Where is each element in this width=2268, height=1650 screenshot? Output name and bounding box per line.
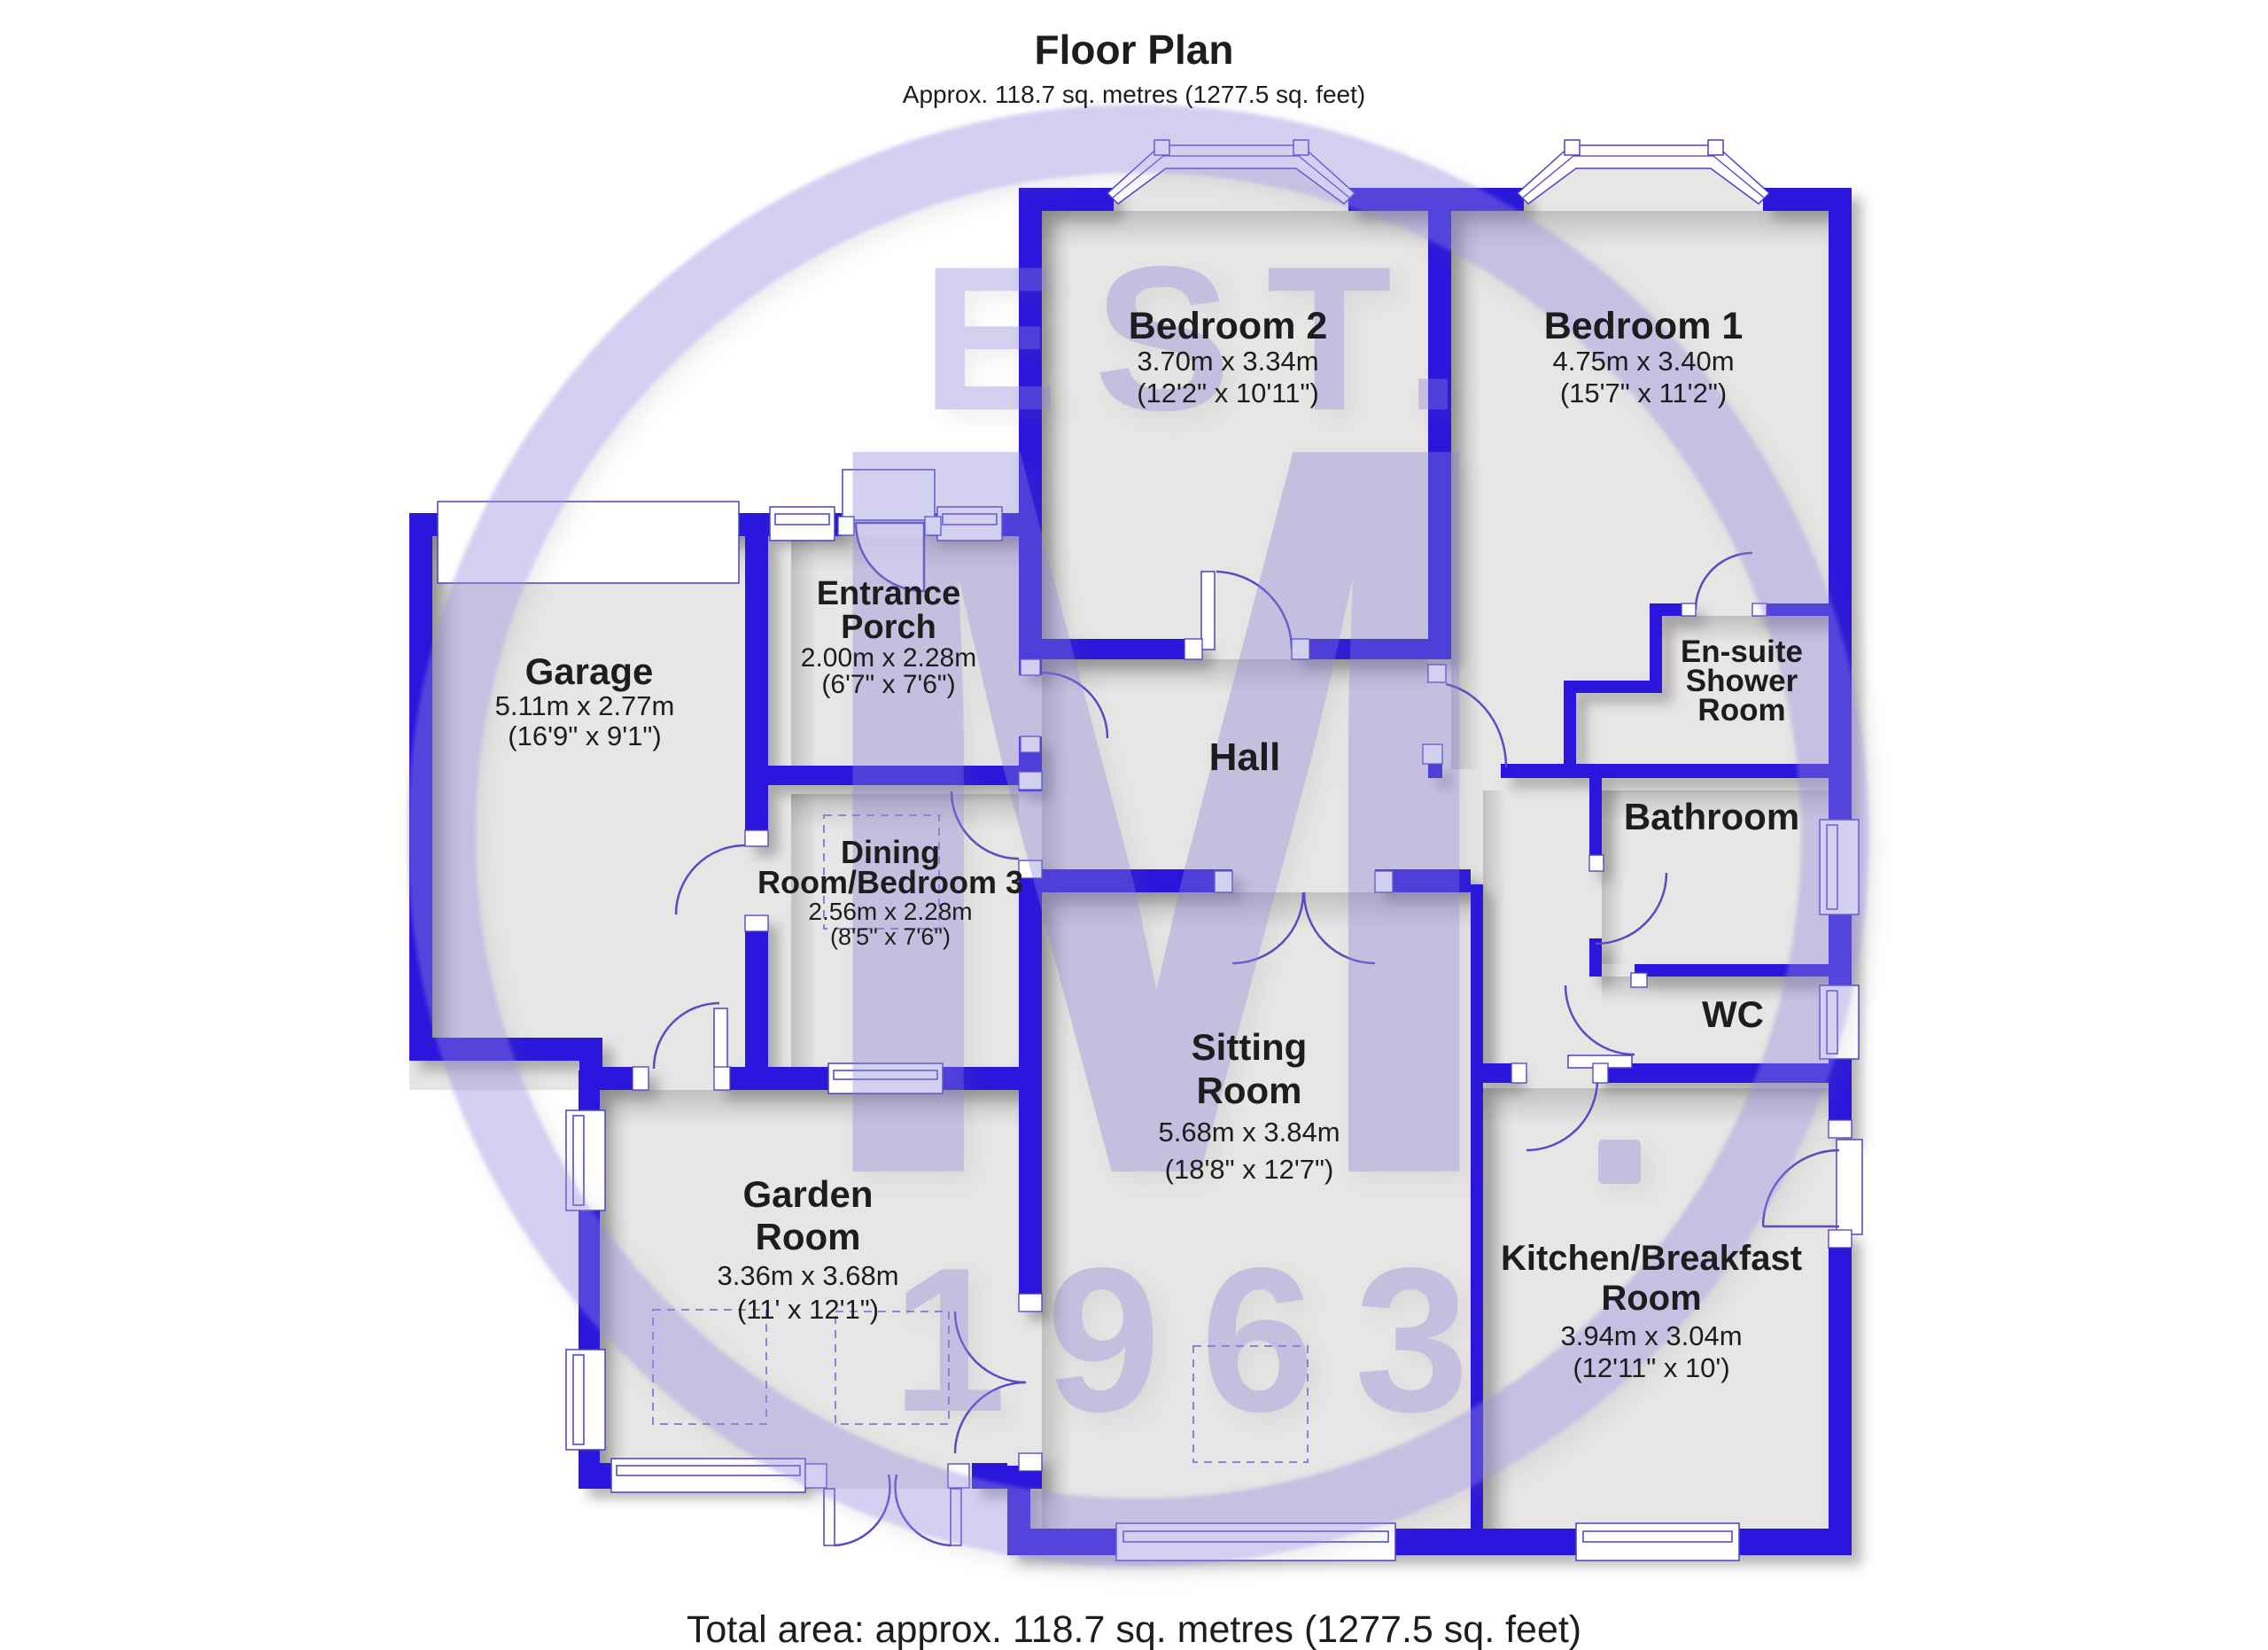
svg-text:(12'11" x 10'): (12'11" x 10') — [1573, 1352, 1729, 1383]
svg-text:Bedroom 2: Bedroom 2 — [1129, 305, 1328, 347]
svg-text:2.00m x 2.28m: 2.00m x 2.28m — [801, 643, 976, 673]
svg-text:(12'2" x 10'11"): (12'2" x 10'11") — [1137, 377, 1319, 409]
svg-text:Room/Bedroom 3: Room/Bedroom 3 — [757, 864, 1023, 900]
svg-text:3.70m x 3.34m: 3.70m x 3.34m — [1137, 346, 1318, 377]
svg-text:4.75m x 3.40m: 4.75m x 3.40m — [1552, 346, 1734, 377]
svg-text:Bedroom 1: Bedroom 1 — [1544, 305, 1744, 347]
svg-text:Total area: approx. 118.7 sq.: Total area: approx. 118.7 sq. metres (12… — [687, 1608, 1581, 1650]
svg-text:3.36m x 3.68m: 3.36m x 3.68m — [717, 1260, 898, 1291]
svg-text:Hall: Hall — [1209, 735, 1281, 779]
svg-text:Entrance: Entrance — [817, 575, 961, 612]
svg-text:Bathroom: Bathroom — [1624, 796, 1799, 837]
svg-text:Kitchen/Breakfast: Kitchen/Breakfast — [1501, 1239, 1802, 1278]
svg-text:(8'5" x 7'6"): (8'5" x 7'6") — [830, 923, 951, 950]
svg-text:Approx. 118.7 sq. metres (1277: Approx. 118.7 sq. metres (1277.5 sq. fee… — [903, 81, 1365, 108]
svg-text:Garage: Garage — [525, 650, 654, 692]
svg-text:Room: Room — [1601, 1279, 1701, 1318]
svg-text:Room: Room — [1197, 1070, 1302, 1111]
svg-text:Garden: Garden — [742, 1173, 873, 1215]
svg-text:3.94m x 3.04m: 3.94m x 3.04m — [1560, 1320, 1742, 1351]
svg-text:Floor Plan: Floor Plan — [1035, 27, 1234, 73]
svg-text:5.68m x 3.84m: 5.68m x 3.84m — [1158, 1117, 1340, 1148]
svg-text:(16'9" x 9'1"): (16'9" x 9'1") — [508, 720, 661, 751]
svg-text:2.56m x 2.28m: 2.56m x 2.28m — [808, 898, 972, 925]
svg-text:Porch: Porch — [841, 609, 936, 646]
svg-text:1963: 1963 — [892, 1226, 1509, 1455]
svg-text:(18'8" x 12'7"): (18'8" x 12'7") — [1165, 1154, 1334, 1185]
svg-text:Room: Room — [756, 1216, 861, 1257]
svg-text:WC: WC — [1702, 993, 1764, 1035]
svg-text:5.11m x 2.77m: 5.11m x 2.77m — [495, 690, 675, 721]
svg-text:(11' x 12'1"): (11' x 12'1") — [737, 1294, 879, 1325]
svg-text:(6'7" x 7'6"): (6'7" x 7'6") — [821, 670, 955, 699]
svg-text:Sitting: Sitting — [1192, 1026, 1308, 1068]
svg-text:(15'7" x 11'2"): (15'7" x 11'2") — [1560, 377, 1727, 409]
svg-text:Room: Room — [1697, 693, 1785, 728]
